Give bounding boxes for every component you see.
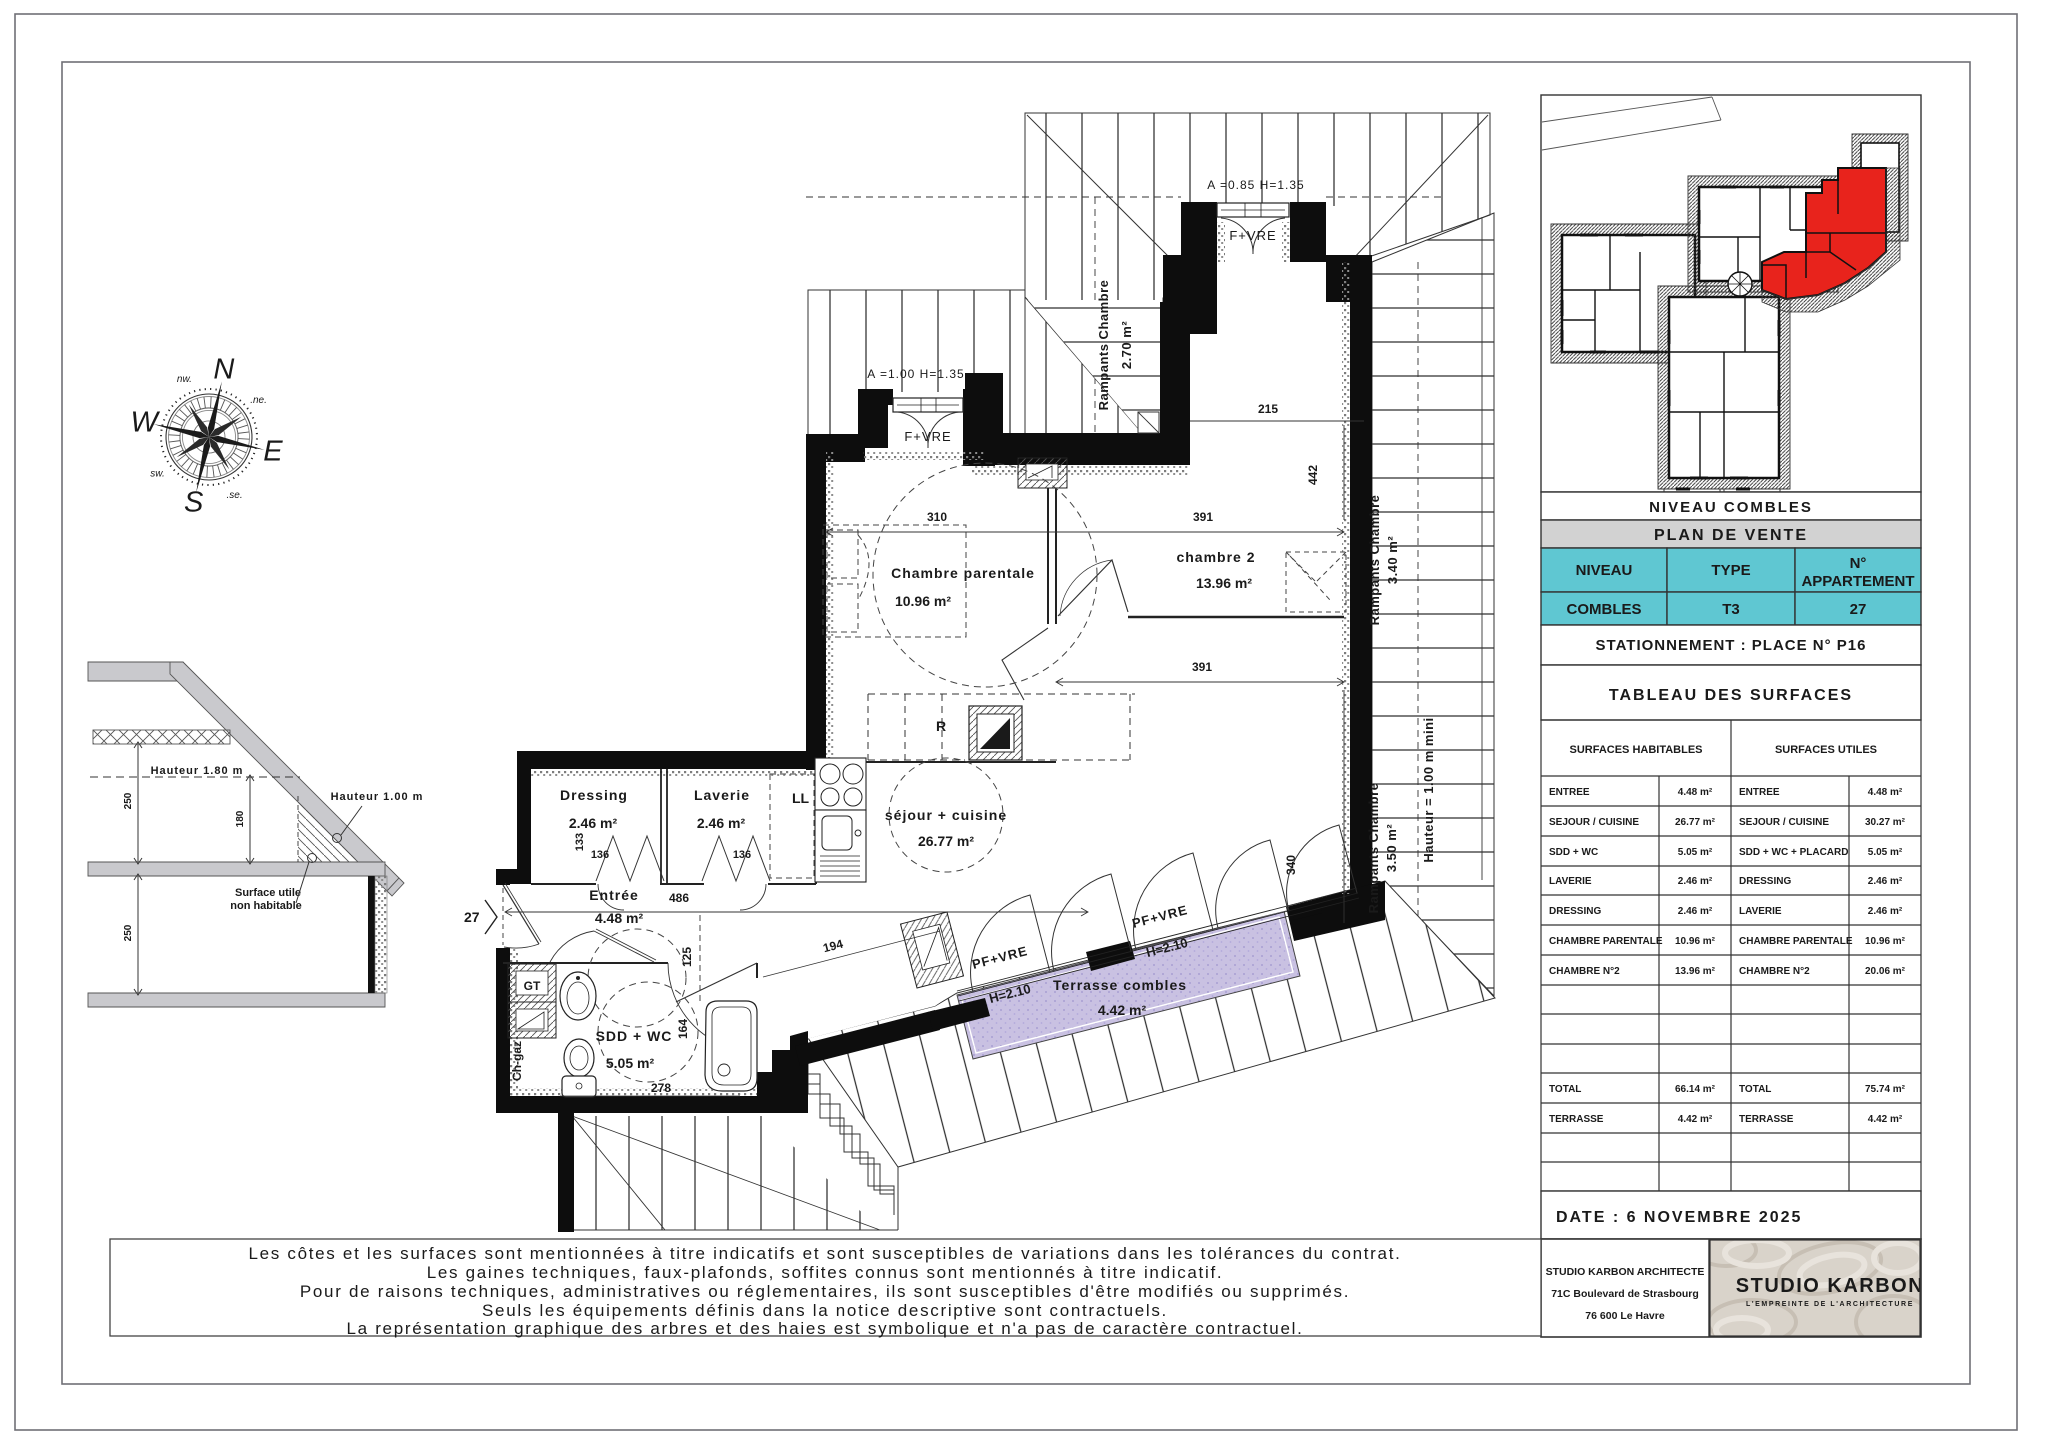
svg-text:4.42 m²: 4.42 m² [1678,1114,1713,1125]
svg-text:27: 27 [464,909,480,925]
svg-text:.se.: .se. [226,490,242,501]
svg-text:10.96 m²: 10.96 m² [1675,936,1716,947]
svg-text:5.05 m²: 5.05 m² [606,1055,655,1071]
svg-text:391: 391 [1193,510,1213,524]
svg-text:2.46 m²: 2.46 m² [1868,906,1903,917]
svg-text:250: 250 [123,924,134,941]
svg-text:Rampants Chambre: Rampants Chambre [1367,495,1382,626]
svg-text:Hauteur 1.80 m: Hauteur 1.80 m [151,765,244,777]
svg-text:GT: GT [524,979,541,993]
svg-text:séjour + cuisine: séjour + cuisine [885,807,1007,823]
svg-text:TABLEAU DES SURFACES: TABLEAU DES SURFACES [1609,687,1853,704]
svg-text:4.42 m²: 4.42 m² [1868,1114,1903,1125]
svg-text:TERRASSE: TERRASSE [1549,1114,1604,1125]
svg-text:10.96 m²: 10.96 m² [1865,936,1906,947]
svg-text:T3: T3 [1722,601,1740,618]
svg-text:DRESSING: DRESSING [1549,906,1601,917]
svg-text:R: R [936,718,946,734]
svg-text:SDD + WC + PLACARD: SDD + WC + PLACARD [1739,847,1848,858]
svg-text:DRESSING: DRESSING [1739,876,1791,887]
svg-text:CHAMBRE PARENTALE: CHAMBRE PARENTALE [1739,936,1853,947]
svg-text:Laverie: Laverie [694,787,750,803]
svg-text:310: 310 [927,510,947,524]
svg-text:L'EMPREINTE DE L'ARCHITECTURE: L'EMPREINTE DE L'ARCHITECTURE [1746,1301,1914,1308]
svg-text:Ch-gaz: Ch-gaz [510,1041,524,1081]
svg-text:TYPE: TYPE [1711,562,1750,579]
svg-text:75.74 m²: 75.74 m² [1865,1084,1906,1095]
svg-text:Rampants Chambre: Rampants Chambre [1096,280,1111,411]
svg-text:164: 164 [676,1019,690,1039]
svg-text:SURFACES UTILES: SURFACES UTILES [1775,744,1877,756]
svg-text:Entrée: Entrée [589,887,639,903]
svg-text:F+VRE: F+VRE [1229,228,1276,243]
svg-text:27: 27 [1850,601,1867,618]
svg-text:Hauteur 1.00 m: Hauteur 1.00 m [331,791,424,803]
svg-text:.ne.: .ne. [250,395,267,406]
svg-text:2.46 m²: 2.46 m² [569,815,618,831]
svg-text:20.06 m²: 20.06 m² [1865,966,1906,977]
svg-text:COMBLES: COMBLES [1567,601,1642,618]
svg-text:NIVEAU: NIVEAU [1576,562,1633,579]
svg-text:ENTREE: ENTREE [1739,787,1780,798]
svg-text:136: 136 [733,849,751,861]
svg-text:S: S [184,486,204,518]
svg-text:2.46 m²: 2.46 m² [1678,876,1713,887]
svg-text:SEJOUR / CUISINE: SEJOUR / CUISINE [1739,817,1829,828]
svg-text:13.96 m²: 13.96 m² [1196,575,1252,591]
svg-text:Seuls les équipements définis: Seuls les équipements définis dans la no… [482,1301,1168,1320]
svg-text:N: N [213,354,234,386]
svg-text:ENTREE: ENTREE [1549,787,1590,798]
svg-text:A =0.85 H=1.35: A =0.85 H=1.35 [1207,178,1304,192]
svg-text:278: 278 [651,1081,671,1095]
svg-text:3.50 m²: 3.50 m² [1384,824,1399,872]
svg-text:NIVEAU COMBLES: NIVEAU COMBLES [1649,499,1813,516]
svg-text:chambre 2: chambre 2 [1176,549,1255,565]
svg-text:Surface utile: Surface utile [235,887,301,899]
svg-text:Les gaines techniques, faux-pl: Les gaines techniques, faux-plafonds, so… [427,1263,1224,1282]
svg-text:STUDIO KARBON: STUDIO KARBON [1736,1275,1924,1297]
svg-text:STATIONNEMENT : PLACE N° P16: STATIONNEMENT : PLACE N° P16 [1596,637,1867,654]
svg-text:APPARTEMENT: APPARTEMENT [1801,573,1914,590]
svg-text:215: 215 [1258,402,1278,416]
svg-text:W: W [131,407,161,439]
svg-text:Dressing: Dressing [560,787,628,803]
svg-text:TOTAL: TOTAL [1549,1084,1581,1095]
svg-text:SDD + WC: SDD + WC [596,1028,673,1044]
svg-text:66.14 m²: 66.14 m² [1675,1084,1716,1095]
svg-text:PLAN DE VENTE: PLAN DE VENTE [1654,527,1808,544]
svg-text:3.40 m²: 3.40 m² [1385,536,1400,584]
svg-text:340: 340 [1284,855,1298,875]
svg-text:10.96 m²: 10.96 m² [895,593,951,609]
svg-text:2.46 m²: 2.46 m² [1678,906,1713,917]
svg-text:sw.: sw. [150,468,164,479]
svg-text:DATE : 6 NOVEMBRE 2025: DATE : 6 NOVEMBRE 2025 [1556,1209,1802,1226]
svg-text:SURFACES HABITABLES: SURFACES HABITABLES [1569,744,1702,756]
svg-text:4.42 m²: 4.42 m² [1098,1002,1147,1018]
svg-text:Rampants Chambre: Rampants Chambre [1366,783,1381,914]
svg-text:133: 133 [574,833,586,851]
svg-text:125: 125 [680,947,694,967]
svg-text:CHAMBRE N°2: CHAMBRE N°2 [1549,966,1620,977]
svg-text:180: 180 [235,810,246,827]
svg-text:Pour de raisons techniques, ad: Pour de raisons techniques, administrati… [300,1282,1350,1301]
svg-text:13.96 m²: 13.96 m² [1675,966,1716,977]
svg-text:250: 250 [123,792,134,809]
svg-text:STUDIO KARBON ARCHITECTE: STUDIO KARBON ARCHITECTE [1546,1266,1705,1278]
svg-text:LAVERIE: LAVERIE [1549,876,1592,887]
svg-text:LL: LL [792,790,810,806]
svg-text:Terrasse combles: Terrasse combles [1053,977,1187,993]
svg-text:2.70 m²: 2.70 m² [1119,321,1134,369]
svg-text:A =1.00 H=1.35: A =1.00 H=1.35 [867,367,964,381]
svg-text:La représentation graphique d: La représentation graphique des arbres e… [346,1319,1303,1338]
svg-text:26.77 m²: 26.77 m² [1675,817,1716,828]
svg-text:4.48 m²: 4.48 m² [1868,787,1903,798]
svg-text:N°: N° [1850,555,1867,572]
svg-text:LAVERIE: LAVERIE [1739,906,1782,917]
svg-text:4.48 m²: 4.48 m² [1678,787,1713,798]
svg-text:136: 136 [591,849,609,861]
svg-text:2.46 m²: 2.46 m² [1868,876,1903,887]
svg-text:71C Boulevard de Strasbourg: 71C Boulevard de Strasbourg [1551,1288,1699,1300]
svg-text:442: 442 [1306,465,1320,485]
svg-text:391: 391 [1192,660,1212,674]
svg-text:CHAMBRE N°2: CHAMBRE N°2 [1739,966,1810,977]
svg-text:5.05 m²: 5.05 m² [1868,847,1903,858]
svg-text:26.77 m²: 26.77 m² [918,833,974,849]
svg-text:Hauteur = 1.00 m mini: Hauteur = 1.00 m mini [1421,717,1436,862]
svg-text:non habitable: non habitable [230,900,302,912]
svg-text:76 600 Le Havre: 76 600 Le Havre [1585,1310,1665,1322]
svg-text:SDD + WC: SDD + WC [1549,847,1598,858]
svg-text:Les côtes et les surfaces sont: Les côtes et les surfaces sont mentionné… [248,1244,1401,1263]
svg-text:F+VRE: F+VRE [904,429,951,444]
svg-text:E: E [263,435,283,467]
svg-text:486: 486 [669,891,689,905]
svg-text:TOTAL: TOTAL [1739,1084,1771,1095]
svg-text:CHAMBRE PARENTALE: CHAMBRE PARENTALE [1549,936,1663,947]
svg-text:2.46 m²: 2.46 m² [697,815,746,831]
svg-text:5.05 m²: 5.05 m² [1678,847,1713,858]
svg-text:TERRASSE: TERRASSE [1739,1114,1794,1125]
svg-text:SEJOUR / CUISINE: SEJOUR / CUISINE [1549,817,1639,828]
svg-text:Chambre parentale: Chambre parentale [891,565,1035,581]
svg-text:nw.: nw. [177,374,192,385]
svg-text:30.27 m²: 30.27 m² [1865,817,1906,828]
